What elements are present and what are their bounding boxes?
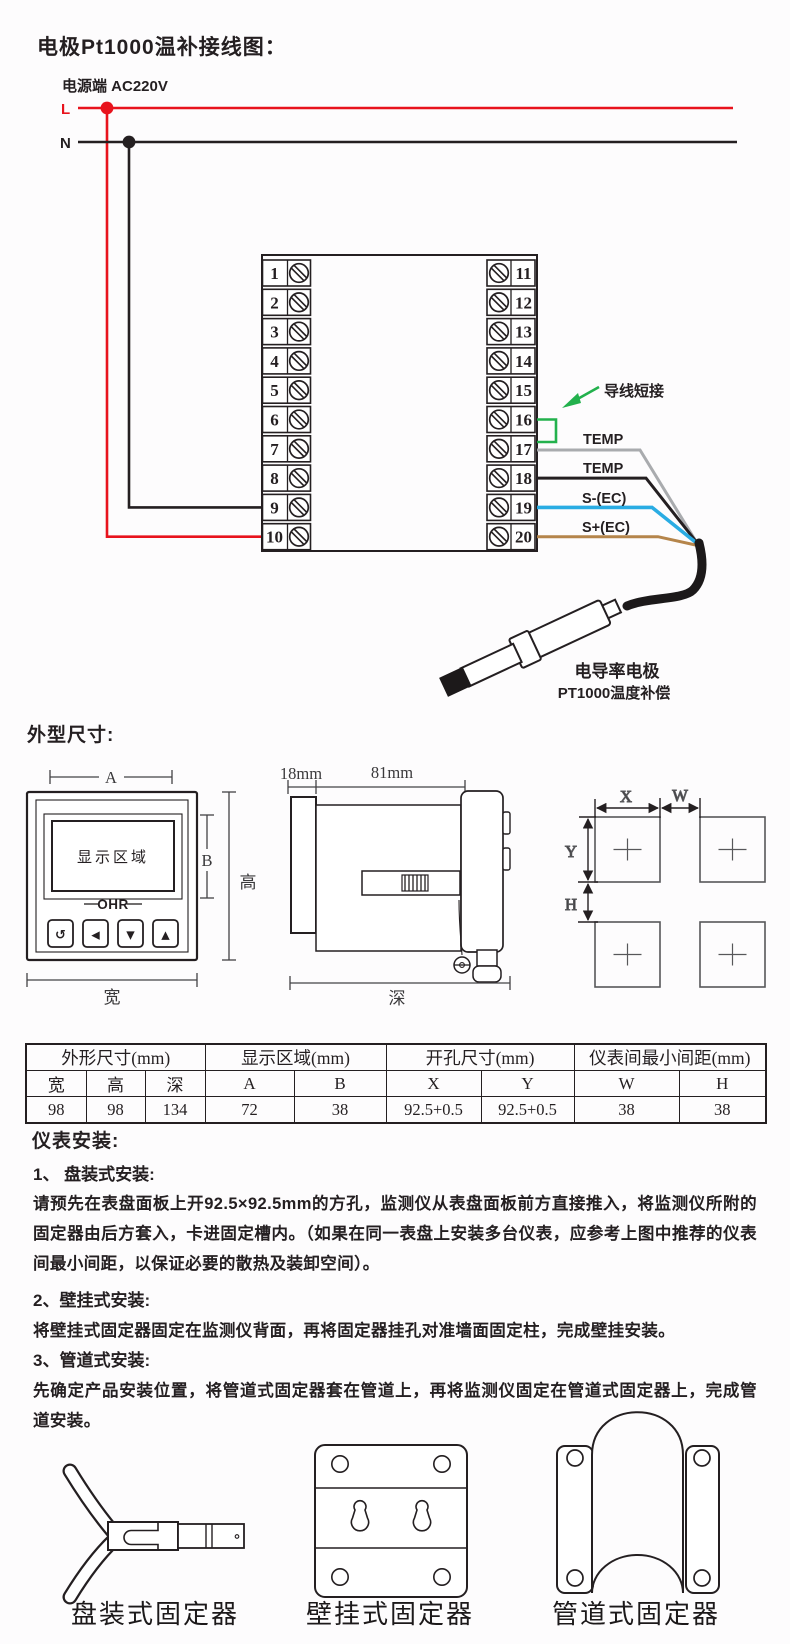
install-item1-title: 1、 盘装式安装:	[33, 1160, 155, 1185]
dimension-drawings: A 显示区域 OHR ↺ ◀ ▼ ▲ B	[0, 755, 790, 1037]
wall-fixture-drawing	[315, 1445, 467, 1597]
electrode-sublabel: PT1000温度补偿	[558, 684, 671, 702]
group-spacing: 仪表间最小间距(mm)	[574, 1044, 766, 1071]
dim-h-label: H	[565, 895, 577, 914]
val-depth: 134	[145, 1097, 205, 1124]
svg-text:5: 5	[270, 381, 279, 400]
terminal-cell: 10	[263, 524, 311, 550]
terminal-cell: 16	[487, 407, 535, 433]
wire-label-s-plus: S+(EC)	[582, 520, 630, 536]
dim-height-label: 高	[240, 873, 257, 892]
dim-w-label: W	[672, 786, 688, 805]
front-view: A 显示区域 OHR ↺ ◀ ▼ ▲ B	[27, 768, 257, 1007]
dimension-table: 外形尺寸(mm) 显示区域(mm) 开孔尺寸(mm) 仪表间最小间距(mm) 宽…	[25, 1043, 767, 1124]
wire-label-s-minus: S-(EC)	[582, 491, 626, 507]
front-bezel	[291, 797, 316, 933]
display-area-label: 显示区域	[77, 849, 149, 866]
wire-label-temp2: TEMP	[583, 461, 624, 477]
table-group-row: 外形尺寸(mm) 显示区域(mm) 开孔尺寸(mm) 仪表间最小间距(mm)	[26, 1044, 766, 1071]
dim-depth-label: 深	[389, 989, 406, 1008]
table-header-row: 宽 高 深 A B X Y W H	[26, 1071, 766, 1097]
mounting-clamp	[362, 871, 460, 895]
install-item2-title: 2、壁挂式安装:	[33, 1286, 150, 1311]
svg-text:7: 7	[270, 440, 279, 459]
dim-b-label: B	[201, 851, 212, 870]
col-x: X	[386, 1071, 481, 1097]
col-b: B	[294, 1071, 386, 1097]
col-w: W	[574, 1071, 679, 1097]
val-a: 72	[205, 1097, 294, 1124]
val-x: 92.5+0.5	[386, 1097, 481, 1124]
svg-text:20: 20	[515, 528, 532, 547]
svg-text:12: 12	[515, 293, 532, 312]
col-a: A	[205, 1071, 294, 1097]
corner-hole	[694, 1450, 710, 1466]
col-depth: 深	[145, 1071, 205, 1097]
center-cross-icons	[614, 839, 747, 966]
side-view: 18mm 81mm	[280, 763, 510, 1008]
terminal-cell: 14	[487, 348, 535, 374]
dim-a-label: A	[105, 768, 117, 787]
dim-y-label: Y	[565, 842, 577, 861]
wire-label-temp1: TEMP	[583, 432, 624, 448]
up-arrow-icon: ▲	[161, 929, 170, 942]
terminal-cell: 15	[487, 377, 535, 403]
down-arrow-icon: ▼	[126, 929, 135, 942]
svg-text:6: 6	[270, 411, 279, 430]
svg-text:15: 15	[515, 381, 532, 400]
svg-text:8: 8	[270, 469, 279, 488]
wall-fixture-label: 壁挂式固定器	[280, 1594, 500, 1626]
corner-hole	[694, 1570, 710, 1586]
left-arrow-icon: ◀	[91, 929, 100, 942]
pipe-fixture-label: 管道式固定器	[526, 1594, 746, 1626]
junction-dot-l	[101, 102, 114, 115]
group-cutout: 开孔尺寸(mm)	[386, 1044, 574, 1071]
col-h: H	[679, 1071, 766, 1097]
svg-text:17: 17	[515, 440, 533, 459]
svg-text:1: 1	[270, 264, 279, 283]
rear-screw	[454, 957, 470, 973]
corner-hole	[567, 1570, 583, 1586]
brand-logo: OHR	[97, 897, 129, 912]
terminal-cell: 17	[487, 436, 535, 462]
panel-fixture-label: 盘装式固定器	[35, 1594, 275, 1626]
col-width: 宽	[26, 1071, 86, 1097]
install-item2-body: 将壁挂式固定器固定在监测仪背面，再将固定器挂孔对准墙面固定柱，完成壁挂安装。	[33, 1316, 757, 1346]
terminal-cell: 5	[263, 377, 311, 403]
wiring-diagram: 电源端 AC220V L N	[0, 0, 790, 712]
val-height: 98	[86, 1097, 145, 1124]
loop-icon: ↺	[55, 928, 66, 943]
svg-text:16: 16	[515, 411, 532, 430]
svg-text:4: 4	[270, 352, 279, 371]
dimensions-heading: 外型尺寸:	[27, 720, 114, 747]
line-l-label: L	[61, 101, 70, 118]
svg-text:9: 9	[270, 498, 279, 517]
terminal-cell: 3	[263, 319, 311, 345]
terminal-cell: 18	[487, 465, 535, 491]
install-heading: 仪表安装:	[32, 1126, 119, 1153]
table-value-row: 98 98 134 72 38 92.5+0.5 92.5+0.5 38 38	[26, 1097, 766, 1124]
val-h: 38	[679, 1097, 766, 1124]
val-y: 92.5+0.5	[481, 1097, 574, 1124]
electrode-label: 电导率电极	[575, 661, 660, 681]
jumper-label: 导线短接	[604, 382, 664, 400]
val-w: 38	[574, 1097, 679, 1124]
junction-dot-n	[123, 136, 136, 149]
pipe-fixture-drawing	[557, 1412, 719, 1593]
dim-width-label: 宽	[104, 988, 121, 1007]
val-b: 38	[294, 1097, 386, 1124]
terminal-cell: 20	[487, 524, 535, 550]
terminal-cell: 12	[487, 289, 535, 315]
terminal-cell: 6	[263, 407, 311, 433]
dim-81mm-label: 81mm	[371, 763, 413, 782]
panel-fixture-drawing	[70, 1471, 244, 1597]
svg-text:3: 3	[270, 323, 279, 342]
wire-ec-plus	[537, 537, 700, 546]
install-item1-body: 请预先在表盘面板上开92.5×92.5mm的方孔，监测仪从表盘面板前方直接推入，…	[33, 1189, 757, 1279]
rear-housing	[461, 791, 503, 952]
green-arrow-icon	[562, 393, 581, 408]
power-source-label: 电源端 AC220V	[62, 77, 168, 95]
terminal-cell: 2	[263, 289, 311, 315]
jumper-annotation: 导线短接	[562, 382, 664, 408]
line-n-label: N	[60, 135, 71, 152]
terminal-cell: 7	[263, 436, 311, 462]
svg-text:2: 2	[270, 293, 279, 312]
val-width: 98	[26, 1097, 86, 1124]
col-y: Y	[481, 1071, 574, 1097]
svg-text:18: 18	[515, 469, 532, 488]
terminal-cell: 19	[487, 494, 535, 520]
hole-pattern: X W Y H	[565, 786, 765, 987]
terminal-cell: 9	[263, 494, 311, 520]
install-item3-title: 3、管道式安装:	[33, 1346, 150, 1371]
electrode-cable	[627, 543, 702, 606]
terminal-cell: 11	[487, 260, 535, 286]
svg-text:10: 10	[266, 528, 283, 547]
svg-text:11: 11	[515, 264, 531, 283]
jumper-wire	[537, 420, 556, 443]
terminal-cell: 4	[263, 348, 311, 374]
svg-text:13: 13	[515, 323, 532, 342]
group-display: 显示区域(mm)	[205, 1044, 386, 1071]
group-outline: 外形尺寸(mm)	[26, 1044, 205, 1071]
terminal-cell: 8	[263, 465, 311, 491]
manual-page: 电极Pt1000温补接线图： 电源端 AC220V L N	[0, 0, 790, 1644]
svg-text:14: 14	[515, 352, 533, 371]
corner-hole	[567, 1450, 583, 1466]
cable-gland	[473, 950, 501, 982]
svg-text:19: 19	[515, 498, 532, 517]
terminal-cell: 1	[263, 260, 311, 286]
dim-x-label: X	[620, 787, 632, 806]
col-height: 高	[86, 1071, 145, 1097]
terminal-cell: 13	[487, 319, 535, 345]
